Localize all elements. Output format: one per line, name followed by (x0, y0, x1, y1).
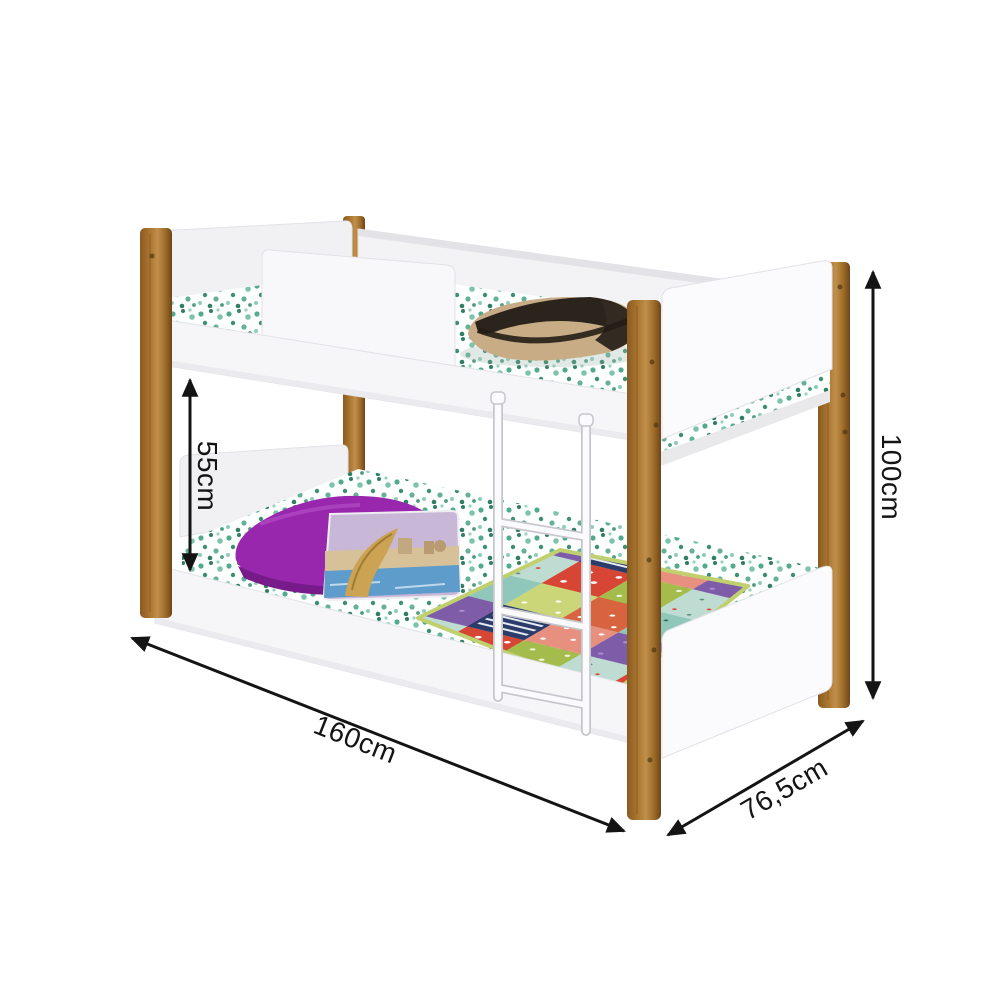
clearance-label: 55cm (192, 441, 223, 511)
bunk-bed (140, 216, 850, 820)
post-foot-front (627, 300, 661, 820)
height-label: 100cm (876, 434, 907, 521)
screw-hole (654, 423, 659, 428)
screw-hole (650, 360, 655, 365)
post-head-front (140, 228, 172, 618)
dimension-height: 100cm (873, 272, 907, 698)
screw-hole (647, 558, 652, 563)
diagram-canvas: 55cm 100cm 160cm 76,5cm (0, 0, 1000, 1000)
screw-hole (150, 254, 155, 259)
bunk-bed-dimension-diagram: 55cm 100cm 160cm 76,5cm (0, 0, 1000, 1000)
depth-label: 76,5cm (735, 751, 833, 826)
ladder-hook (491, 392, 505, 404)
screw-hole (843, 430, 848, 435)
ladder-hook (579, 414, 593, 426)
screw-hole (838, 285, 843, 290)
length-label: 160cm (310, 709, 402, 770)
city-print-cushion (324, 511, 460, 600)
screw-hole (648, 758, 653, 763)
screw-hole (841, 393, 846, 398)
screw-hole (652, 648, 657, 653)
